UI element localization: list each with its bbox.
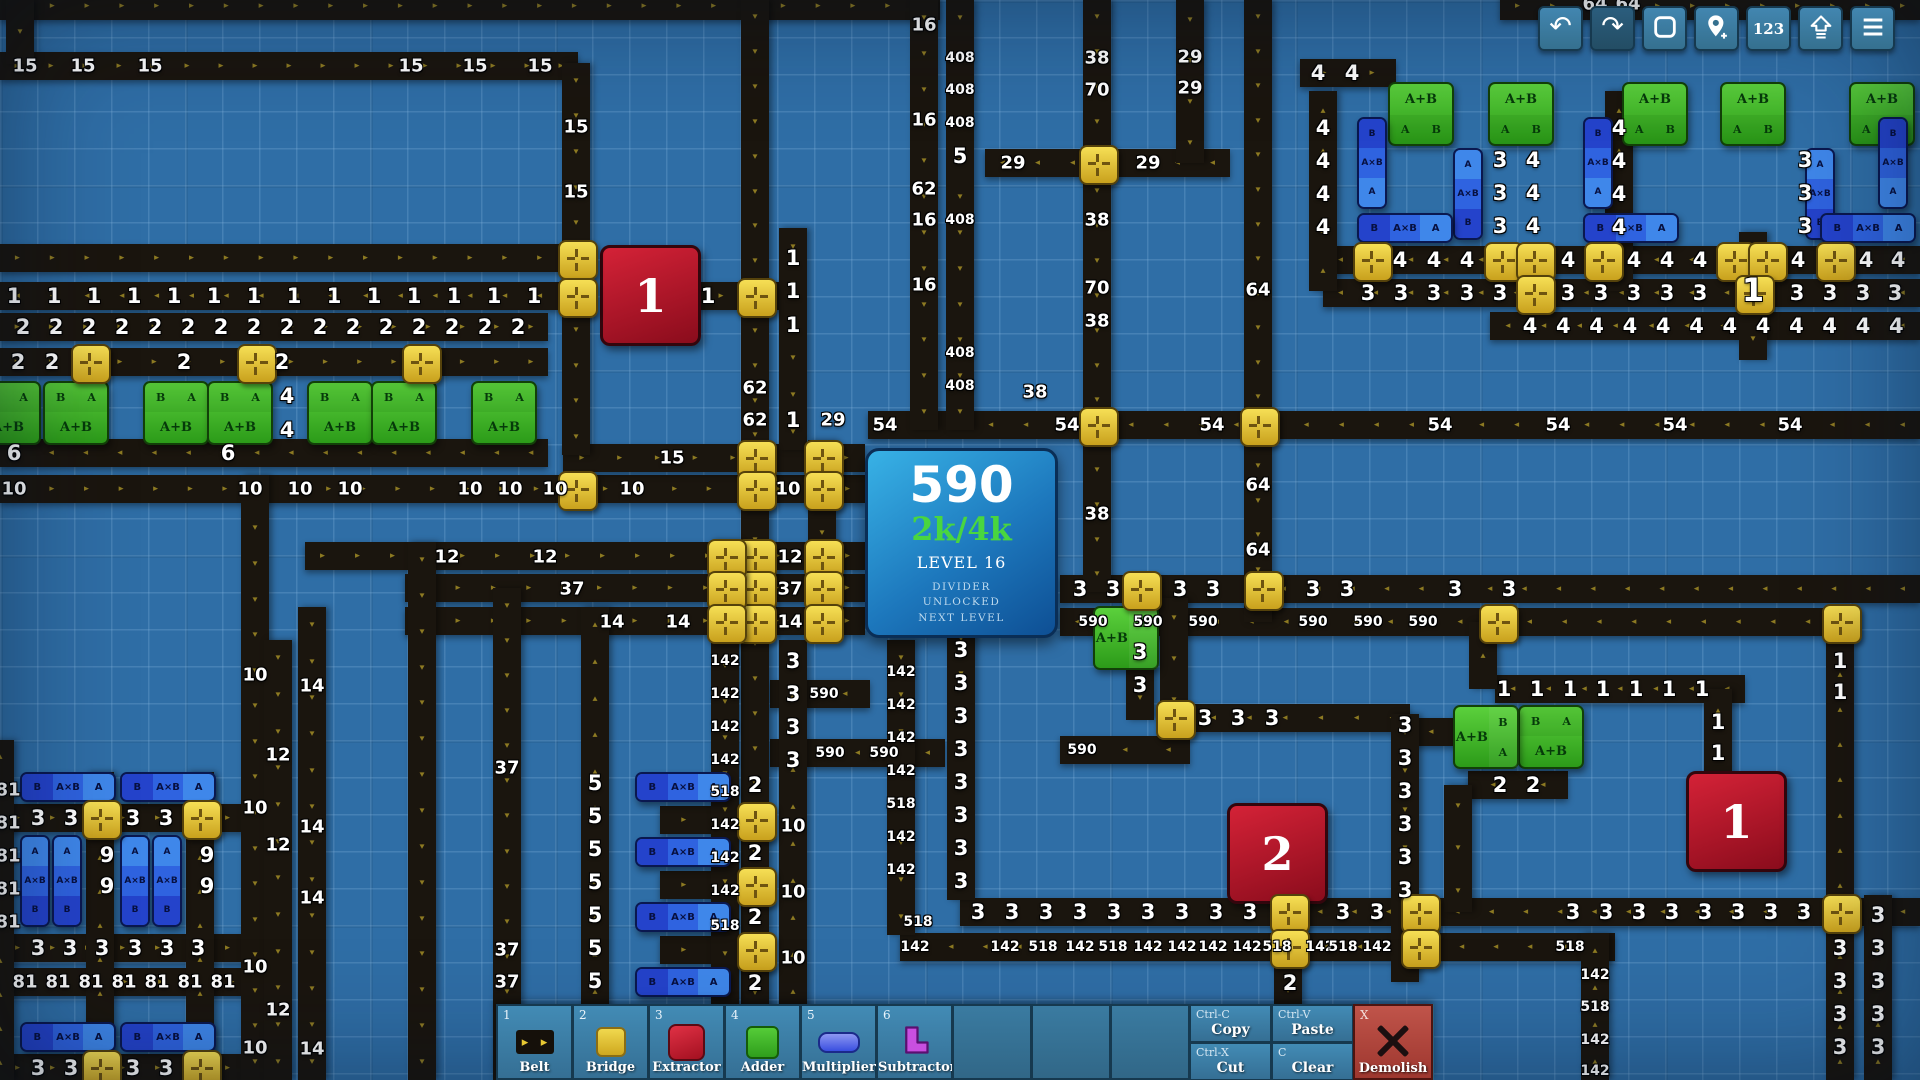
belt-arrow-icon: ▸ bbox=[845, 584, 850, 593]
belt-arrow-icon: ▸ bbox=[50, 814, 55, 823]
conveyor-belt[interactable]: ▾▾▾▾▾▾▾▾▾▾▾▾▾▾▾▾▾▾ bbox=[1244, 0, 1272, 622]
belt-arrow-icon: ▾ bbox=[275, 690, 280, 699]
belt-value-label: 2 bbox=[313, 315, 328, 339]
tool-adder-button[interactable]: 4Adder bbox=[724, 1004, 800, 1080]
belt-arrow-icon: ▾ bbox=[921, 300, 926, 309]
belt-arrow-icon: ▴ bbox=[790, 987, 795, 996]
belt-arrow-icon: ▸ bbox=[50, 944, 55, 953]
belt-arrow-icon: ◂ bbox=[1164, 421, 1169, 430]
belt-bridge[interactable] bbox=[82, 1050, 122, 1080]
belt-value-label: 3 bbox=[1493, 281, 1508, 305]
belt-arrow-icon: ▸ bbox=[1369, 69, 1374, 78]
belt-arrow-icon: ▾ bbox=[252, 915, 257, 924]
belt-value-label: 3 bbox=[954, 869, 969, 893]
belt-value-label: 3 bbox=[954, 770, 969, 794]
tool-bridge-button[interactable]: 2Bridge bbox=[572, 1004, 648, 1080]
selection-box-button[interactable] bbox=[1642, 6, 1687, 51]
belt-bridge[interactable] bbox=[82, 800, 122, 840]
belt-value-label: 15 bbox=[70, 56, 95, 77]
multiplier-machine[interactable]: AA×BB bbox=[52, 835, 82, 927]
input-b-label: B bbox=[122, 1024, 153, 1050]
belt-value-label: 3 bbox=[1039, 900, 1054, 924]
belt-bridge[interactable] bbox=[804, 471, 844, 511]
upgrades-button[interactable] bbox=[1798, 6, 1843, 51]
belt-arrow-icon: ▸ bbox=[50, 1064, 55, 1073]
belt-arrow-icon: ▸ bbox=[398, 2, 403, 11]
belt-arrow-icon: ◂ bbox=[1591, 585, 1596, 594]
belt-arrow-icon: ◂ bbox=[152, 449, 157, 458]
belt-arrow-icon: ◂ bbox=[1408, 256, 1413, 265]
belt-arrow-icon: ▾ bbox=[1255, 324, 1260, 333]
belt-bridge[interactable] bbox=[1156, 700, 1196, 740]
belt-value-label: 9 bbox=[200, 874, 215, 898]
belt-value-label: 3 bbox=[1198, 706, 1213, 730]
belt-value-label: 3 bbox=[786, 715, 801, 739]
multiply-op-label: A×B bbox=[1585, 148, 1611, 177]
belt-arrow-icon: ▾ bbox=[1255, 462, 1260, 471]
belt-bridge[interactable] bbox=[1822, 894, 1862, 934]
belt-value-label: 142 bbox=[710, 653, 739, 669]
cut-button[interactable]: Ctrl-XCut bbox=[1189, 1042, 1271, 1080]
belt-arrow-icon: ◂ bbox=[83, 449, 88, 458]
belt-value-label: 518 bbox=[903, 914, 932, 930]
belt-bridge[interactable] bbox=[1516, 275, 1556, 315]
belt-value-label: 518 bbox=[1262, 939, 1291, 955]
empty-tool-slot[interactable] bbox=[1031, 1004, 1110, 1080]
belt-arrow-icon: ◂ bbox=[1653, 685, 1658, 694]
belt-arrow-icon: ◂ bbox=[1419, 585, 1424, 594]
extractor-machine[interactable]: 1 bbox=[1686, 771, 1787, 872]
belt-arrow-icon: ▸ bbox=[565, 552, 570, 561]
belt-value-label: 9 bbox=[100, 874, 115, 898]
belt-arrow-icon: ▾ bbox=[504, 917, 509, 926]
belt-icon: ▸▸ bbox=[516, 1030, 554, 1054]
belt-arrow-icon: ▴ bbox=[1320, 107, 1325, 116]
adder-io-labels: BA bbox=[309, 383, 371, 412]
belt-arrow-icon: ▸ bbox=[119, 485, 124, 494]
input-a-label: A bbox=[54, 837, 80, 866]
belt-value-label: 142 bbox=[710, 850, 739, 866]
belt-arrow-icon: ▾ bbox=[1255, 255, 1260, 264]
belt-bridge[interactable] bbox=[1270, 894, 1310, 934]
subtractor-icon bbox=[900, 1025, 930, 1059]
belt-arrow-icon: ▸ bbox=[15, 944, 20, 953]
belt-arrow-icon: ◂ bbox=[1797, 585, 1802, 594]
adder-machine[interactable]: A+BAB bbox=[1488, 82, 1554, 146]
belt-bridge[interactable] bbox=[237, 344, 277, 384]
belt-bridge[interactable] bbox=[1479, 604, 1519, 644]
belt-value-label: 4 bbox=[1523, 314, 1538, 338]
belt-value-label: 3 bbox=[1398, 713, 1413, 737]
demolish-label: Demolish bbox=[1355, 1061, 1431, 1076]
belt-arrow-icon: ◂ bbox=[1505, 322, 1510, 331]
adder-machine[interactable]: BAA+B bbox=[0, 381, 41, 445]
belt-value-label: 3 bbox=[1306, 577, 1321, 601]
belt-arrow-icon: ◂ bbox=[1724, 289, 1729, 298]
belt-bridge[interactable] bbox=[1079, 407, 1119, 447]
belt-value-label: 3 bbox=[1660, 281, 1675, 305]
clear-button[interactable]: CClear bbox=[1271, 1042, 1353, 1080]
belt-value-label: 54 bbox=[1545, 415, 1570, 436]
belt-bridge[interactable] bbox=[1244, 571, 1284, 611]
belt-value-label: 3 bbox=[1823, 281, 1838, 305]
belt-arrow-icon: ◂ bbox=[1354, 714, 1359, 723]
paste-button[interactable]: Ctrl-VPaste bbox=[1271, 1004, 1353, 1042]
multiplier-machine[interactable]: BA×BA bbox=[1357, 117, 1387, 209]
belt-arrow-icon: ▸ bbox=[718, 292, 723, 301]
belt-bridge[interactable] bbox=[402, 344, 442, 384]
conveyor-belt[interactable]: ▾ bbox=[6, 0, 34, 64]
belt-value-label: 408 bbox=[945, 82, 974, 98]
adder-machine[interactable]: BAA+B bbox=[471, 381, 537, 445]
belt-arrow-icon: ▸ bbox=[328, 254, 333, 263]
belt-value-label: 3 bbox=[1798, 214, 1813, 238]
adder-machine[interactable]: A+BAB bbox=[1622, 82, 1688, 146]
adder-machine[interactable]: BAA+B bbox=[307, 381, 373, 445]
belt-value-label: 3 bbox=[159, 806, 174, 830]
multiplier-machine[interactable]: AA×BB bbox=[152, 835, 182, 927]
belt-arrow-icon: ▾ bbox=[1094, 535, 1099, 544]
multiplier-machine[interactable]: BA×BA bbox=[1357, 213, 1453, 243]
belt-arrow-icon: ▾ bbox=[1187, 16, 1192, 25]
belt-arrow-icon: ◂ bbox=[1617, 685, 1622, 694]
belt-bridge[interactable] bbox=[1240, 407, 1280, 447]
undo-button[interactable]: ↶ bbox=[1538, 6, 1583, 51]
belt-bridge[interactable] bbox=[1122, 571, 1162, 611]
belt-value-label: 3 bbox=[1594, 281, 1609, 305]
belt-value-label: 3 bbox=[1833, 1002, 1848, 1026]
belt-value-label: 2 bbox=[148, 315, 163, 339]
adder-machine[interactable]: A+BBA bbox=[1453, 705, 1519, 769]
belt-arrow-icon: ▴ bbox=[790, 913, 795, 922]
belt-value-label: 590 bbox=[809, 686, 838, 702]
belt-value-label: 4 bbox=[1789, 314, 1804, 338]
belt-arrow-icon: ▾ bbox=[1455, 886, 1460, 895]
belt-bridge[interactable] bbox=[1584, 242, 1624, 282]
belt-value-label: 3 bbox=[1665, 900, 1680, 924]
belt-value-label: 10 bbox=[619, 479, 644, 500]
belt-arrow-icon: ▾ bbox=[752, 152, 757, 161]
multiplier-machine[interactable]: AA×BB bbox=[1453, 148, 1483, 240]
adder-machine[interactable]: BAA+B bbox=[1518, 705, 1584, 769]
input-b-label: B bbox=[1822, 215, 1853, 241]
belt-bridge[interactable] bbox=[182, 800, 222, 840]
belt-value-label: 5 bbox=[588, 870, 603, 894]
belt-value-label: 142 bbox=[886, 829, 915, 845]
belt-arrow-icon: ◂ bbox=[1317, 908, 1322, 917]
belt-value-label: 2 bbox=[45, 350, 60, 374]
belt-value-label: 1 bbox=[367, 284, 382, 308]
belt-value-label: 1 bbox=[527, 284, 542, 308]
belt-arrow-icon: ◂ bbox=[1900, 585, 1905, 594]
belt-value-label: 81 bbox=[0, 912, 21, 933]
belt-value-label: 10 bbox=[337, 479, 362, 500]
belt-value-label: 142 bbox=[1167, 939, 1196, 955]
belt-value-label: 518 bbox=[886, 796, 915, 812]
belt-arrow-icon: ▸ bbox=[526, 584, 531, 593]
belt-arrow-icon: ▾ bbox=[1094, 187, 1099, 196]
belt-arrow-icon: ◂ bbox=[1428, 728, 1433, 737]
belt-arrow-icon: ▾ bbox=[752, 709, 757, 718]
belt-value-label: 29 bbox=[1177, 78, 1202, 99]
belt-value-label: 81 bbox=[78, 972, 103, 993]
belt-value-label: 4 bbox=[1589, 314, 1604, 338]
belt-value-label: 408 bbox=[945, 212, 974, 228]
belt-arrow-icon: ▸ bbox=[120, 944, 125, 953]
belt-bridge[interactable] bbox=[182, 1050, 222, 1080]
conveyor-belt[interactable]: ▸▸▸▸▸▸▸▸▸▸▸▸▸▸▸▸▸▸▸▸▸▸▸▸▸▸▸ bbox=[0, 0, 940, 20]
belt-arrow-icon: ▸ bbox=[845, 552, 850, 561]
belt-arrow-icon: ▾ bbox=[819, 528, 824, 537]
belt-arrow-icon: ▾ bbox=[573, 326, 578, 335]
belt-value-label: 62 bbox=[742, 378, 767, 399]
adder-machine[interactable]: BAA+B bbox=[143, 381, 209, 445]
belt-arrow-icon: ▸ bbox=[323, 358, 328, 367]
adder-op-label: A+B bbox=[1624, 84, 1686, 115]
belt-bridge[interactable] bbox=[1079, 145, 1119, 185]
belt-value-label: 10 bbox=[242, 665, 267, 686]
tool-label: Multiplier bbox=[802, 1060, 875, 1075]
multiplier-machine[interactable]: BA×BA bbox=[120, 1022, 216, 1052]
belt-arrow-icon: ▸ bbox=[326, 485, 331, 494]
conveyor-belt[interactable]: ▸▸▸▸▸▸▸▸▸▸▸▸▸▸▸▸▸▸▸▸▸▸▸▸▸ bbox=[0, 475, 865, 503]
tool-hotkey: 6 bbox=[883, 1008, 891, 1022]
belt-arrow-icon: ◂ bbox=[1562, 618, 1567, 627]
conveyor-belt[interactable]: ▾▾▾ bbox=[1444, 785, 1472, 912]
hub-level: LEVEL 16 bbox=[917, 553, 1007, 572]
belt-arrow-icon: ▾ bbox=[790, 390, 795, 399]
belt-arrow-icon: ◂ bbox=[528, 449, 533, 458]
belt-value-label: 1 bbox=[1563, 677, 1578, 701]
belt-bridge[interactable] bbox=[737, 932, 777, 972]
adder-machine[interactable]: BAA+B bbox=[43, 381, 109, 445]
input-a-label: A bbox=[698, 969, 729, 995]
input-b-label: B bbox=[1455, 209, 1481, 238]
belt-bridge[interactable] bbox=[737, 867, 777, 907]
extractor-machine[interactable]: 1 bbox=[600, 245, 701, 346]
adder-io-labels: BA bbox=[145, 383, 207, 412]
belt-value-label: 64 bbox=[1245, 475, 1270, 496]
multiplier-machine[interactable]: BA×BA bbox=[20, 1022, 116, 1052]
belt-arrow-icon: ▾ bbox=[921, 49, 926, 58]
belt-value-label: 3 bbox=[1427, 281, 1442, 305]
belt-arrow-icon: ▾ bbox=[957, 13, 962, 22]
belt-arrow-icon: ◂ bbox=[1701, 618, 1706, 627]
belt-bridge[interactable] bbox=[737, 802, 777, 842]
belt-bridge[interactable] bbox=[737, 278, 777, 318]
belt-arrow-icon: ◂ bbox=[1234, 421, 1239, 430]
belt-value-label: 4 bbox=[280, 418, 295, 442]
belt-arrow-icon: ▸ bbox=[456, 617, 461, 626]
tool-hotkey: 1 bbox=[503, 1008, 511, 1022]
belt-value-label: 6 bbox=[7, 441, 22, 465]
adder-machine[interactable]: BAA+B bbox=[207, 381, 273, 445]
belt-arrow-icon: ▸ bbox=[670, 552, 675, 561]
belt-bridge[interactable] bbox=[71, 344, 111, 384]
belt-value-label: 142 bbox=[1232, 939, 1261, 955]
belt-arrow-icon: ▾ bbox=[957, 228, 962, 237]
adder-machine[interactable]: A+BAB bbox=[1720, 82, 1786, 146]
belt-value-label: 3 bbox=[1888, 281, 1903, 305]
redo-button[interactable]: ↷ bbox=[1590, 6, 1635, 51]
belt-value-label: 4 bbox=[1693, 248, 1708, 272]
multiplier-machine[interactable]: BA×BA bbox=[635, 967, 731, 997]
adder-op-label: A+B bbox=[1390, 84, 1452, 115]
belt-value-label: 1 bbox=[327, 284, 342, 308]
multiplier-machine[interactable]: AA×BB bbox=[20, 835, 50, 927]
belt-arrow-icon: ▸ bbox=[320, 62, 325, 71]
belt-arrow-icon: ◂ bbox=[117, 449, 122, 458]
tool-extractor-button[interactable]: 3Extractor bbox=[648, 1004, 724, 1080]
menu-button[interactable] bbox=[1850, 6, 1895, 51]
conveyor-belt[interactable]: ◂◂◂◂◂◂◂◂◂◂◂◂◂◂◂◂◂◂◂◂◂◂◂◂◂◂◂◂◂◂ bbox=[868, 411, 1920, 439]
adder-icon bbox=[746, 1026, 779, 1059]
multiplier-machine[interactable]: BA×BA bbox=[1820, 213, 1916, 243]
belt-arrow-icon: ▾ bbox=[1094, 13, 1099, 22]
adder-op-label: A+B bbox=[309, 412, 371, 443]
multiply-op-label: A×B bbox=[1880, 148, 1906, 177]
belt-bridge[interactable] bbox=[1822, 604, 1862, 644]
belt-value-label: 408 bbox=[945, 50, 974, 66]
belt-value-label: 54 bbox=[1777, 415, 1802, 436]
belt-value-label: 29 bbox=[1000, 153, 1025, 174]
belt-value-label: 590 bbox=[1133, 614, 1162, 630]
belt-arrow-icon: ▴ bbox=[592, 694, 597, 703]
belt-value-label: 2 bbox=[181, 315, 196, 339]
conveyor-belt[interactable]: ▾▾▾▾▾▾▾▾▾▾▾▾▾▾▾ bbox=[408, 542, 436, 1080]
multiplier-machine[interactable]: BA×BA bbox=[1583, 213, 1679, 243]
belt-arrow-icon: ▴ bbox=[1837, 846, 1842, 855]
input-b-label: B bbox=[22, 774, 53, 800]
belt-arrow-icon: ▸ bbox=[293, 254, 298, 263]
belt-value-label: 37 bbox=[559, 579, 584, 600]
belt-value-label: 1 bbox=[1530, 677, 1545, 701]
belt-arrow-icon: ▾ bbox=[504, 882, 509, 891]
belt-arrow-icon: ◂ bbox=[1478, 256, 1483, 265]
belt-bridge[interactable] bbox=[1353, 242, 1393, 282]
belt-value-label: 1 bbox=[786, 313, 801, 337]
belt-arrow-icon: ◂ bbox=[1865, 421, 1870, 430]
belt-value-label: 3 bbox=[786, 748, 801, 772]
belt-value-label: 81 bbox=[111, 972, 136, 993]
belt-bridge[interactable] bbox=[707, 604, 747, 644]
tool-label: Bridge bbox=[574, 1060, 647, 1075]
belt-arrow-icon: ▾ bbox=[419, 806, 424, 815]
upgrade-icon bbox=[1807, 13, 1835, 45]
belt-value-label: 81 bbox=[0, 846, 21, 867]
belt-value-label: 10 bbox=[542, 479, 567, 500]
belt-arrow-icon: ▾ bbox=[573, 219, 578, 228]
belt-arrow-icon: ▾ bbox=[252, 1058, 257, 1067]
belt-arrow-icon: ▸ bbox=[354, 62, 359, 71]
belt-value-label: 518 bbox=[1580, 999, 1609, 1015]
copy-button[interactable]: Ctrl-CCopy bbox=[1189, 1004, 1271, 1042]
tool-multiplier-button[interactable]: 5Multiplier bbox=[800, 1004, 876, 1080]
conveyor-belt[interactable]: ◂◂ bbox=[1468, 771, 1568, 799]
belt-arrow-icon: ▸ bbox=[600, 552, 605, 561]
tool-subtractor-button[interactable]: 6Subtractor bbox=[876, 1004, 952, 1080]
belt-arrow-icon: ◂ bbox=[1479, 421, 1484, 430]
number-list-button[interactable]: 123 bbox=[1746, 6, 1791, 51]
tool-label: Extractor bbox=[650, 1060, 723, 1075]
belt-bridge[interactable] bbox=[1401, 929, 1441, 969]
belt-value-label: 5 bbox=[588, 969, 603, 993]
belt-value-label: 14 bbox=[599, 612, 624, 633]
belt-value-label: 81 bbox=[144, 972, 169, 993]
extractor-machine[interactable]: 2 bbox=[1227, 803, 1328, 904]
belt-arrow-icon: ◂ bbox=[494, 449, 499, 458]
empty-tool-slot[interactable] bbox=[952, 1004, 1031, 1080]
adder-op-label: A+B bbox=[0, 412, 39, 443]
multiplier-machine[interactable]: BA×BA bbox=[1583, 117, 1613, 209]
belt-value-label: 37 bbox=[494, 972, 519, 993]
belt-bridge[interactable] bbox=[1816, 242, 1856, 282]
belt-value-label: 70 bbox=[1084, 80, 1109, 101]
conveyor-belt[interactable]: ▸▸▸▸▸▸▸▸▸▸▸▸▸▸▸▸▸ bbox=[0, 244, 592, 272]
belt-bridge[interactable] bbox=[558, 240, 598, 280]
input-b-label: B bbox=[1880, 119, 1906, 148]
belt-arrow-icon: ▾ bbox=[419, 699, 424, 708]
belt-arrow-icon: ▾ bbox=[504, 847, 509, 856]
input-a-label: A bbox=[22, 837, 48, 866]
belt-value-label: 3 bbox=[1502, 577, 1517, 601]
belt-bridge[interactable] bbox=[737, 471, 777, 511]
belt-value-label: 3 bbox=[1698, 900, 1713, 924]
adder-machine[interactable]: A+BAB bbox=[1388, 82, 1454, 146]
belt-arrow-icon: ◂ bbox=[1443, 256, 1448, 265]
belt-bridge[interactable] bbox=[558, 278, 598, 318]
belt-arrow-icon: ◂ bbox=[1625, 585, 1630, 594]
belt-arrow-icon: ▾ bbox=[309, 621, 314, 630]
belt-value-label: 142 bbox=[886, 730, 915, 746]
belt-value-label: 590 bbox=[1353, 614, 1382, 630]
belt-arrow-icon: ▸ bbox=[494, 358, 499, 367]
multiplier-machine[interactable]: AA×BB bbox=[120, 835, 150, 927]
add-waypoint-button[interactable] bbox=[1694, 6, 1739, 51]
demolish-button[interactable]: XDemolish bbox=[1353, 1004, 1433, 1080]
belt-value-label: 14 bbox=[299, 888, 324, 909]
belt-value-label: 142 bbox=[710, 883, 739, 899]
belt-arrow-icon: ▾ bbox=[752, 361, 757, 370]
shortcut-label: Ctrl-C bbox=[1196, 1008, 1230, 1021]
belt-value-label: 2 bbox=[275, 350, 290, 374]
belt-value-label: 142 bbox=[886, 862, 915, 878]
empty-tool-slot[interactable] bbox=[1110, 1004, 1189, 1080]
belt-value-label: 4 bbox=[1316, 215, 1331, 239]
clipboard-label: Paste bbox=[1273, 1022, 1352, 1038]
belt-bridge[interactable] bbox=[804, 604, 844, 644]
multiplier-machine[interactable]: BA×BA bbox=[1878, 117, 1908, 209]
belt-arrow-icon: ▸ bbox=[188, 485, 193, 494]
tool-belt-button[interactable]: 1▸▸Belt bbox=[496, 1004, 572, 1080]
belt-value-label: 3 bbox=[1871, 903, 1886, 927]
hub[interactable]: 590 2k/4k LEVEL 16 DIVIDER UNLOCKED NEXT… bbox=[865, 448, 1058, 638]
belt-arrow-icon: ▸ bbox=[490, 62, 495, 71]
belt-value-label: 3 bbox=[1448, 577, 1463, 601]
input-a-label: A bbox=[1359, 178, 1385, 207]
belt-arrow-icon: ◂ bbox=[1736, 618, 1741, 627]
adder-machine[interactable]: BAA+B bbox=[371, 381, 437, 445]
multiplier-machine[interactable]: BA×BA bbox=[20, 772, 116, 802]
multiplier-machine[interactable]: BA×BA bbox=[120, 772, 216, 802]
belt-value-label: 62 bbox=[911, 179, 936, 200]
conveyor-belt[interactable]: ▾▾▾▾▾▾▾▾ bbox=[887, 640, 915, 935]
belt-arrow-icon: ▸ bbox=[1900, 2, 1905, 11]
shortcut-label: Ctrl-V bbox=[1278, 1008, 1310, 1021]
clipboard-label: Copy bbox=[1191, 1022, 1270, 1038]
belt-arrow-icon: ▾ bbox=[1094, 396, 1099, 405]
conveyor-belt[interactable]: ◂◂◂◂◂◂◂◂◂◂◂◂◂◂◂◂◂◂◂◂◂◂◂◂◂ bbox=[1060, 575, 1920, 603]
